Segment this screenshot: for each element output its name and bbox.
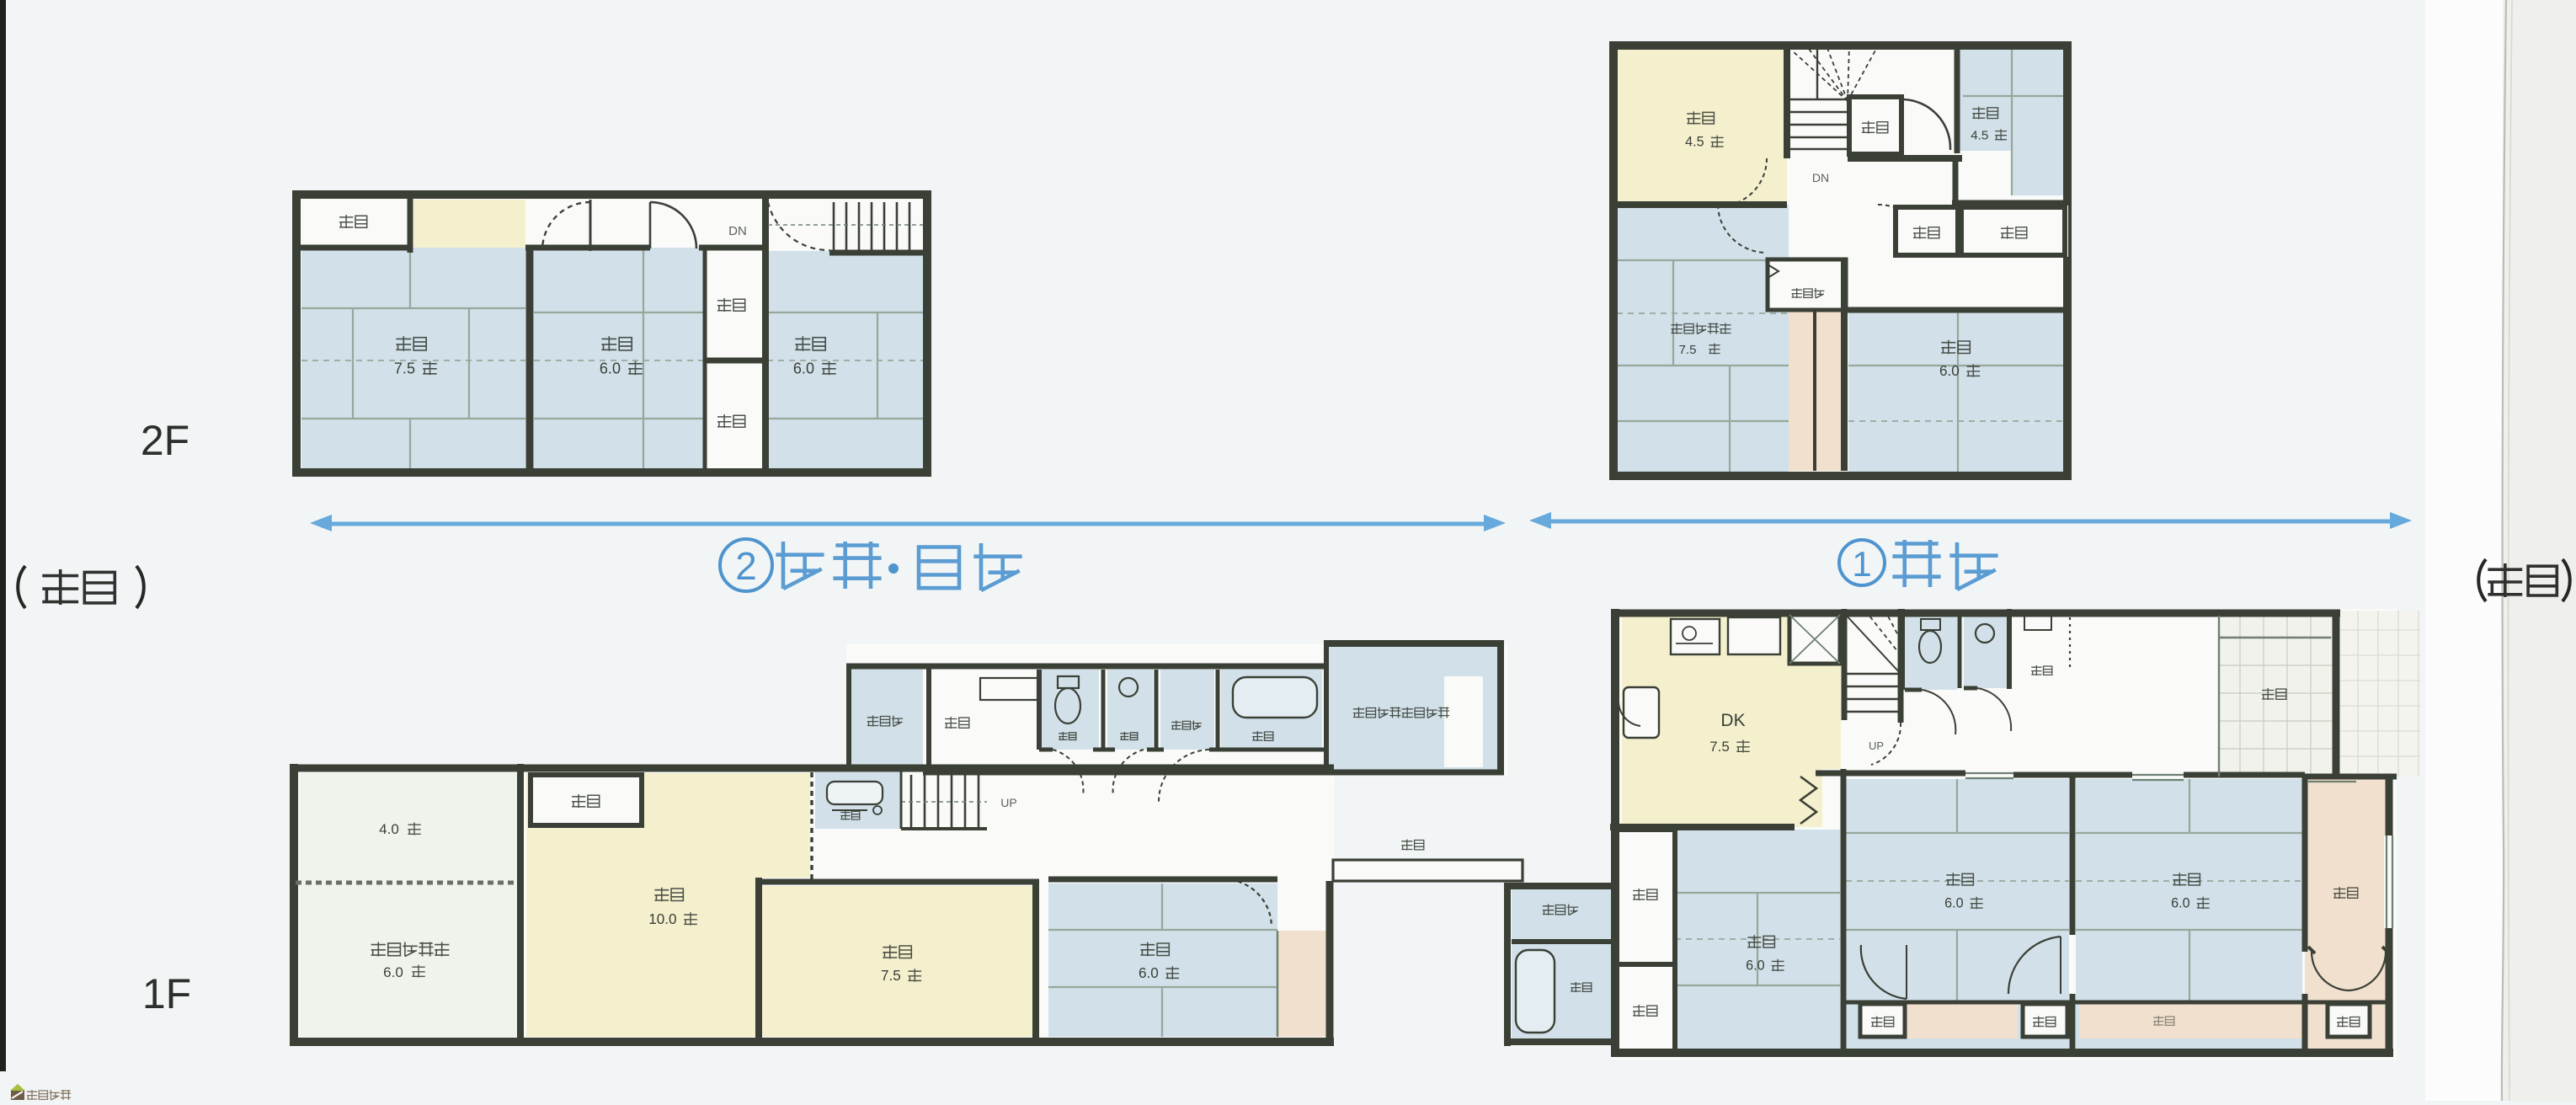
svg-text:6.0: 6.0 xyxy=(1746,958,1764,974)
svg-text:DK: DK xyxy=(1720,711,1745,730)
svg-text:10.0: 10.0 xyxy=(648,911,676,927)
svg-text:DN: DN xyxy=(1812,171,1829,184)
svg-text:1: 1 xyxy=(1852,544,1871,584)
svg-text:7.5: 7.5 xyxy=(1709,739,1730,755)
svg-text:4.0: 4.0 xyxy=(379,821,399,837)
svg-text:4.5: 4.5 xyxy=(1971,128,1988,142)
svg-text:6.0: 6.0 xyxy=(1944,896,1963,911)
svg-text:6.0: 6.0 xyxy=(600,360,621,376)
svg-text:7.5: 7.5 xyxy=(394,360,415,376)
svg-text:7.5: 7.5 xyxy=(881,968,901,984)
svg-text:2F: 2F xyxy=(141,417,189,464)
svg-text:6.0: 6.0 xyxy=(1139,965,1159,981)
svg-text:UP: UP xyxy=(1000,796,1016,809)
svg-text:2: 2 xyxy=(735,544,757,588)
svg-text:6.0: 6.0 xyxy=(2171,896,2189,911)
svg-text:6.0: 6.0 xyxy=(1939,363,1960,379)
svg-text:7.5: 7.5 xyxy=(1679,343,1697,357)
svg-text:6.0: 6.0 xyxy=(383,964,403,980)
svg-text:1F: 1F xyxy=(142,970,191,1017)
svg-text:DN: DN xyxy=(728,224,747,238)
svg-text:UP: UP xyxy=(1869,739,1884,752)
svg-text:6.0: 6.0 xyxy=(793,360,814,376)
svg-text:4.5: 4.5 xyxy=(1685,135,1704,150)
